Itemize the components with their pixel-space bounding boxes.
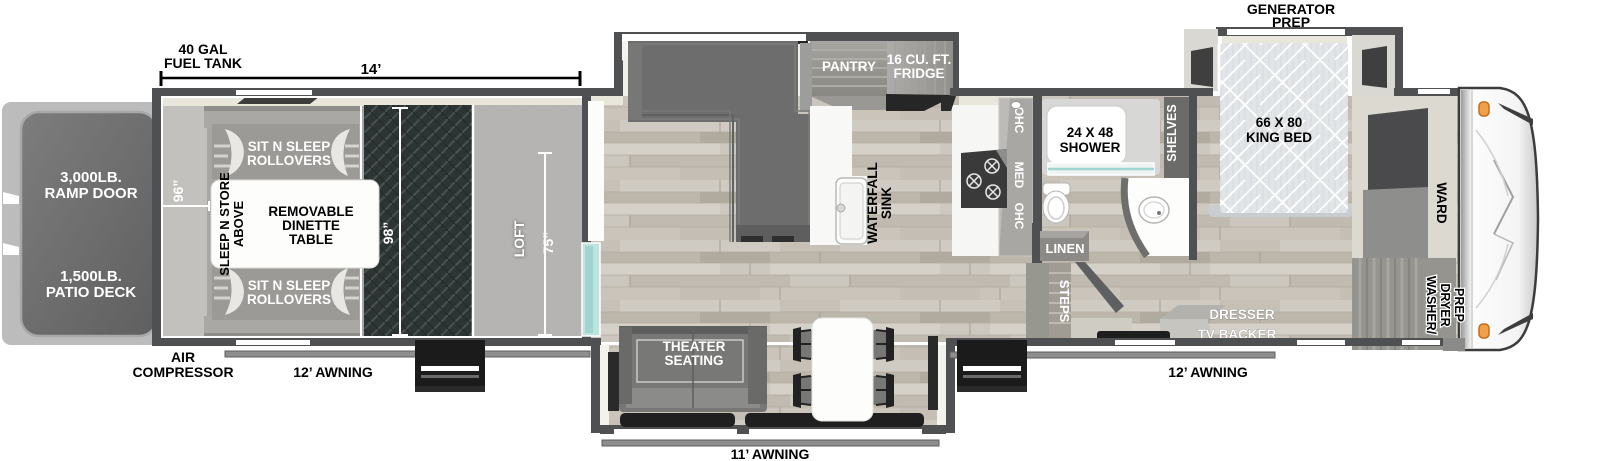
svg-text:COMPRESSOR: COMPRESSOR [132, 364, 233, 380]
svg-text:OHC: OHC [1012, 203, 1026, 230]
svg-text:PANTRY: PANTRY [822, 59, 876, 74]
svg-text:THEATER: THEATER [663, 339, 726, 354]
svg-text:MED: MED [1012, 162, 1026, 189]
svg-text:14’: 14’ [361, 61, 382, 78]
svg-text:66 X 80: 66 X 80 [1256, 115, 1303, 130]
svg-text:FRIDGE: FRIDGE [893, 66, 944, 81]
svg-text:KING BED: KING BED [1246, 130, 1312, 145]
svg-text:SINK: SINK [879, 187, 894, 220]
svg-text:24 X 48: 24 X 48 [1067, 125, 1114, 140]
svg-text:75”: 75” [540, 232, 556, 255]
svg-text:REMOVABLE: REMOVABLE [268, 204, 353, 219]
svg-text:98”: 98” [380, 222, 396, 245]
svg-text:96”: 96” [170, 180, 186, 203]
svg-text:STEPS: STEPS [1057, 280, 1072, 323]
svg-text:DINETTE: DINETTE [282, 218, 340, 233]
svg-text:SHOWER: SHOWER [1060, 140, 1121, 155]
svg-text:ABOVE: ABOVE [231, 201, 246, 248]
svg-text:ROLLOVERS: ROLLOVERS [247, 153, 331, 168]
svg-text:SIT N SLEEP: SIT N SLEEP [248, 278, 331, 293]
svg-text:DRESSER: DRESSER [1209, 307, 1275, 322]
svg-text:SHELVES: SHELVES [1165, 104, 1179, 161]
svg-text:AIR: AIR [171, 349, 195, 365]
svg-text:PATIO DECK: PATIO DECK [46, 284, 136, 301]
svg-text:RAMP DOOR: RAMP DOOR [44, 185, 137, 202]
svg-text:LOFT: LOFT [511, 220, 527, 257]
svg-text:SEATING: SEATING [664, 353, 723, 368]
svg-text:WASHER/: WASHER/ [1424, 276, 1438, 335]
svg-text:TABLE: TABLE [289, 232, 333, 247]
svg-text:SLEEP N STORE: SLEEP N STORE [217, 172, 232, 276]
svg-text:16 CU. FT.: 16 CU. FT. [887, 52, 952, 67]
svg-text:12’ AWNING: 12’ AWNING [1168, 364, 1248, 380]
svg-text:12’ AWNING: 12’ AWNING [293, 364, 373, 380]
svg-text:SIT N SLEEP: SIT N SLEEP [248, 139, 331, 154]
svg-text:WARD: WARD [1434, 182, 1449, 223]
svg-text:FUEL TANK: FUEL TANK [164, 55, 242, 71]
svg-text:1,500LB.: 1,500LB. [60, 268, 122, 285]
svg-text:PREP: PREP [1452, 288, 1466, 322]
svg-text:ROLLOVERS: ROLLOVERS [247, 292, 331, 307]
svg-text:LINEN: LINEN [1046, 241, 1085, 256]
svg-text:11’ AWNING: 11’ AWNING [731, 446, 810, 461]
svg-text:WATERFALL: WATERFALL [865, 162, 880, 244]
svg-text:DRYER: DRYER [1438, 283, 1452, 326]
svg-text:OHC: OHC [1012, 107, 1026, 134]
svg-text:3,000LB.: 3,000LB. [60, 169, 122, 186]
